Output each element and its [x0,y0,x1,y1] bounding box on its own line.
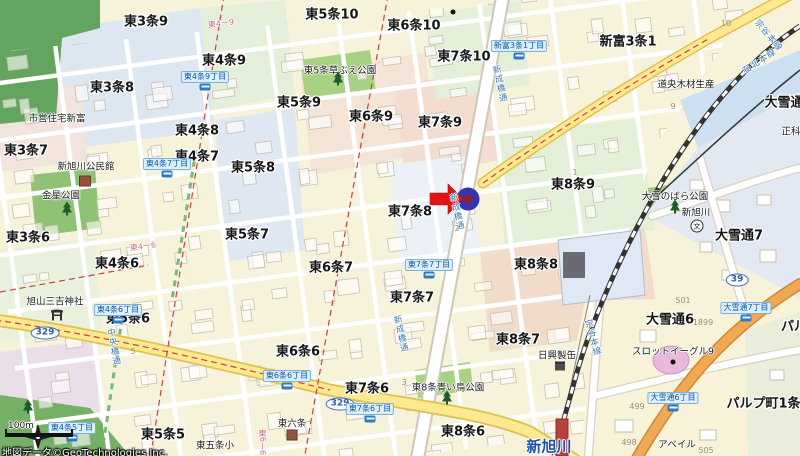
scale-label: 100m [8,421,34,431]
station-platform [556,419,568,456]
map-canvas[interactable]: 東3条9東4条9東5条10東6条10東7条10新富3条1東3条8東4条8東5条9… [0,0,800,456]
basemap-layer [0,0,800,456]
scale-bar [5,433,73,437]
copyright-text: 地図データ©GeoTechnologies Inc. [2,444,167,456]
